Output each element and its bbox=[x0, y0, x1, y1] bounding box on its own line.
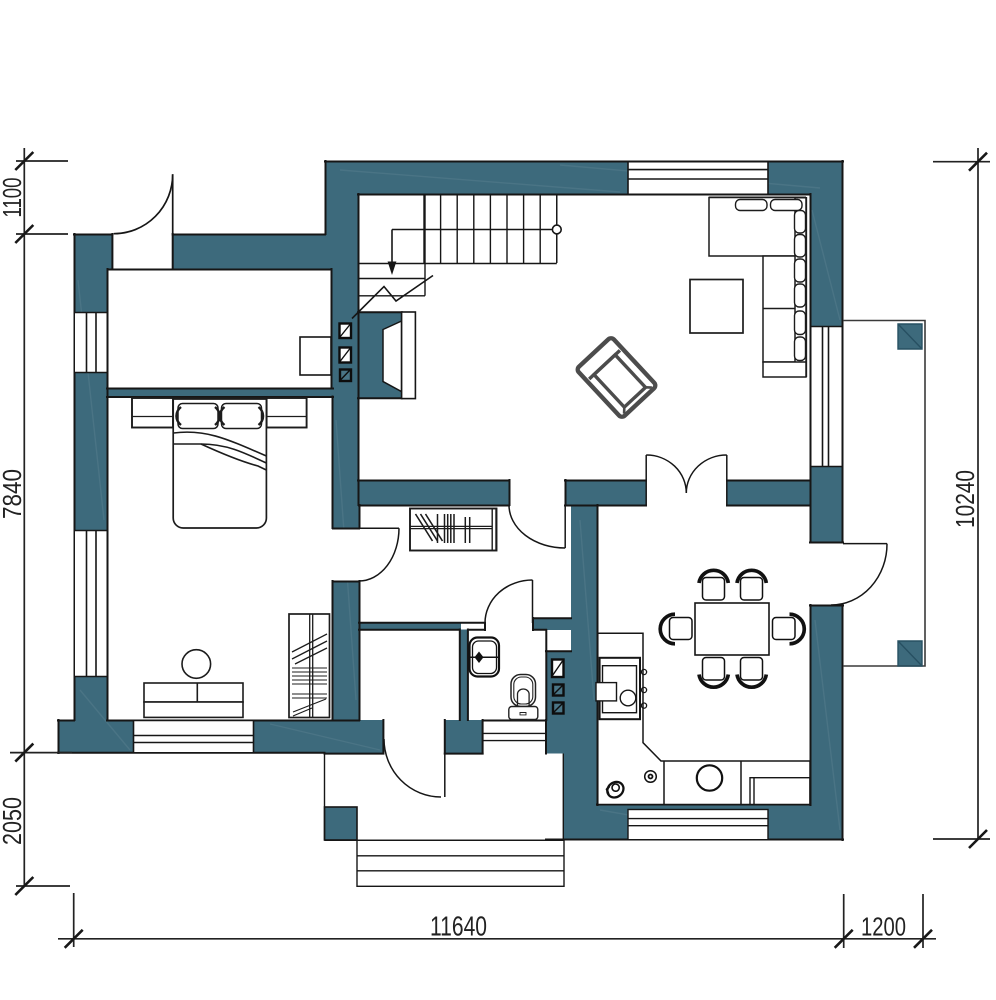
svg-text:1200: 1200 bbox=[861, 914, 906, 942]
svg-text:11640: 11640 bbox=[430, 911, 487, 942]
svg-text:10240: 10240 bbox=[952, 470, 980, 528]
svg-text:2050: 2050 bbox=[0, 797, 27, 845]
svg-text:1100: 1100 bbox=[0, 178, 27, 218]
svg-text:7840: 7840 bbox=[0, 469, 27, 519]
